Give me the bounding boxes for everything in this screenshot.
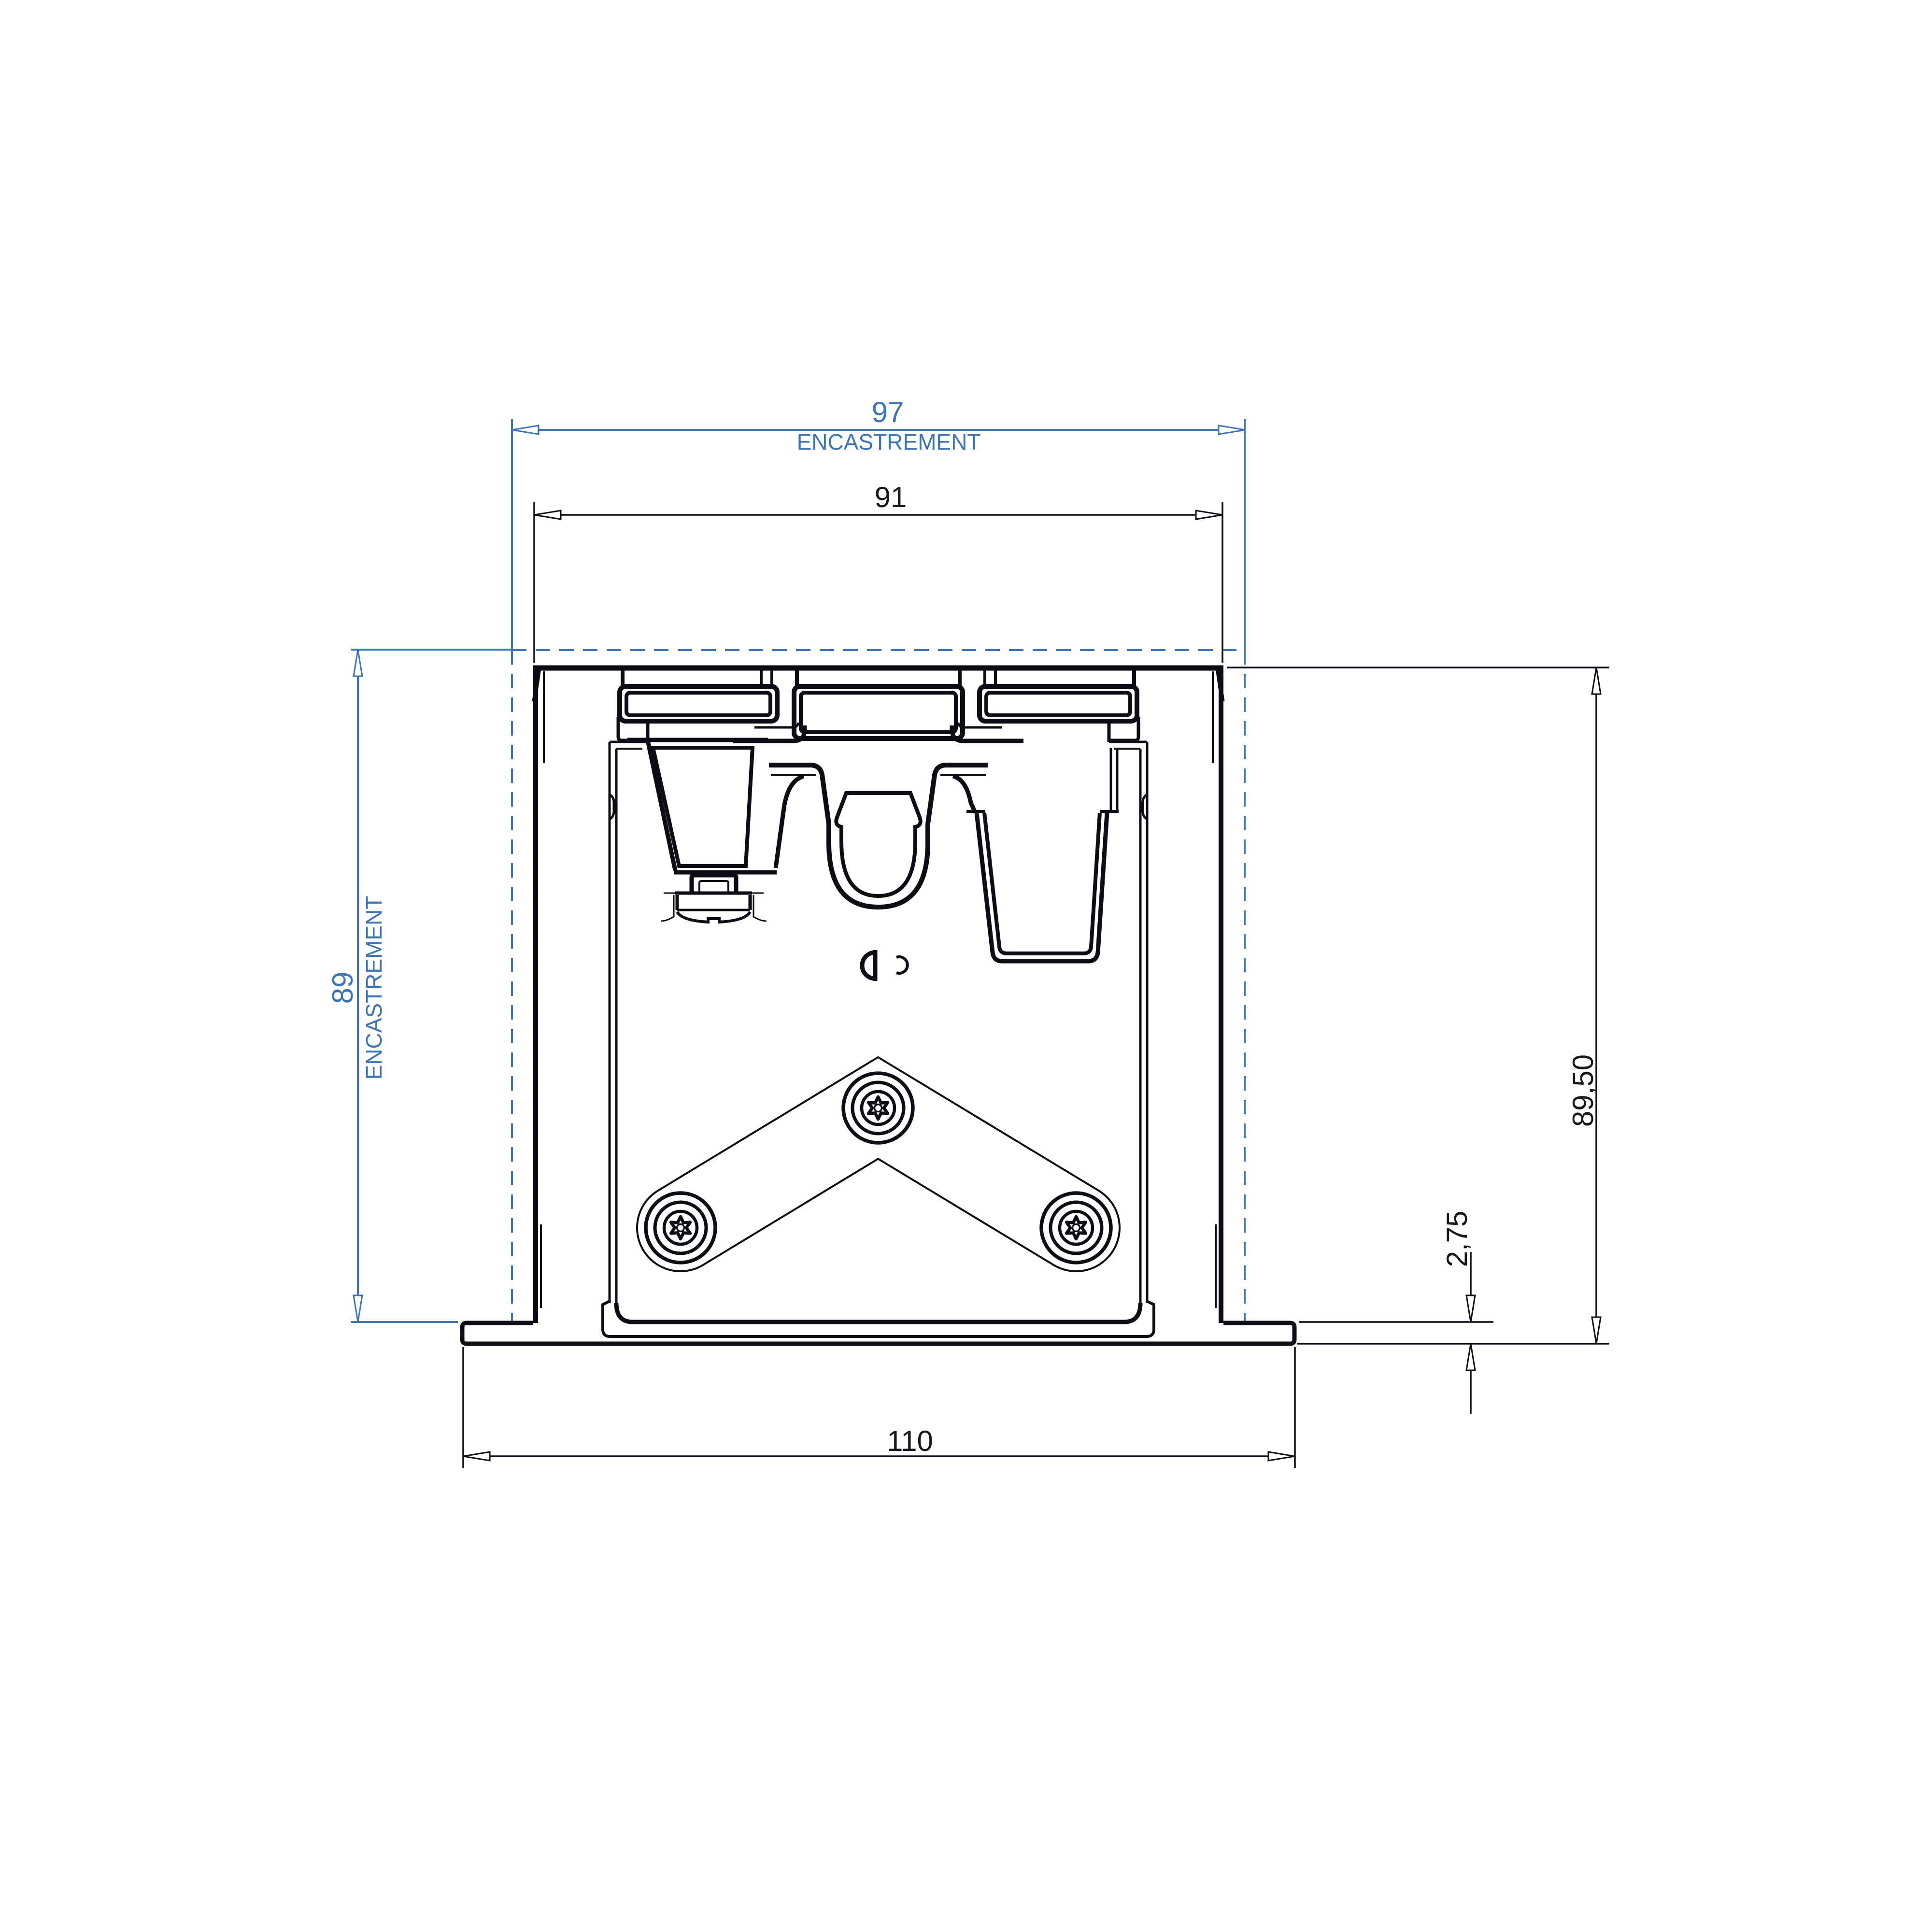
svg-text:110: 110 — [887, 1425, 933, 1457]
svg-text:89: 89 — [327, 972, 359, 1004]
svg-text:91: 91 — [875, 481, 907, 513]
svg-text:ENCASTREMENT: ENCASTREMENT — [361, 896, 386, 1080]
svg-text:ENCASTREMENT: ENCASTREMENT — [797, 429, 981, 455]
svg-text:97: 97 — [872, 396, 904, 428]
svg-text:2,75: 2,75 — [1441, 1211, 1473, 1267]
svg-text:89,50: 89,50 — [1567, 1054, 1599, 1127]
